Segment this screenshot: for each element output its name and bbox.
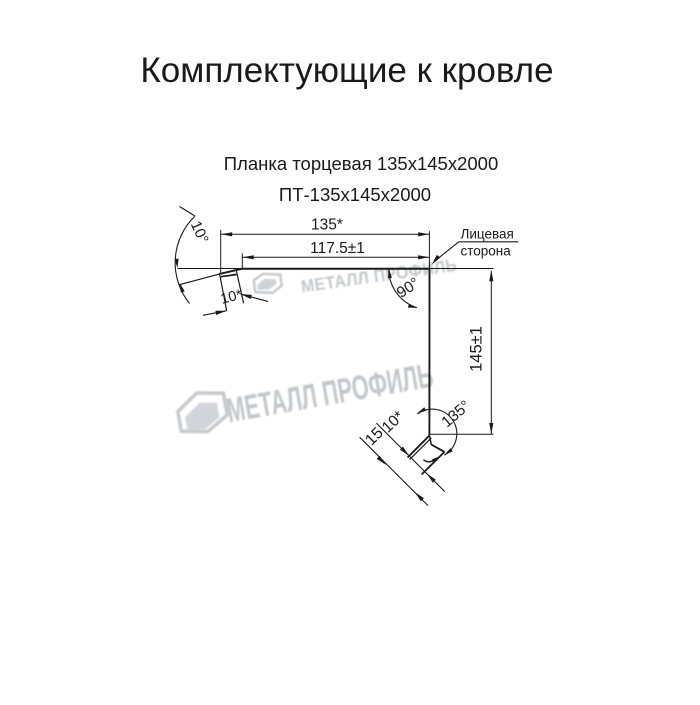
svg-text:Лицевая: Лицевая xyxy=(461,227,514,242)
svg-text:Комплектующие к кровле: Комплектующие к кровле xyxy=(140,51,553,90)
svg-text:ПТ-135х145х2000: ПТ-135х145х2000 xyxy=(279,184,431,205)
svg-text:сторона: сторона xyxy=(461,244,512,259)
svg-text:135*: 135* xyxy=(311,217,343,234)
svg-text:145±1: 145±1 xyxy=(468,326,486,372)
svg-text:117.5±1: 117.5±1 xyxy=(310,240,365,257)
svg-text:Планка торцевая 135х145х2000: Планка торцевая 135х145х2000 xyxy=(224,153,499,174)
